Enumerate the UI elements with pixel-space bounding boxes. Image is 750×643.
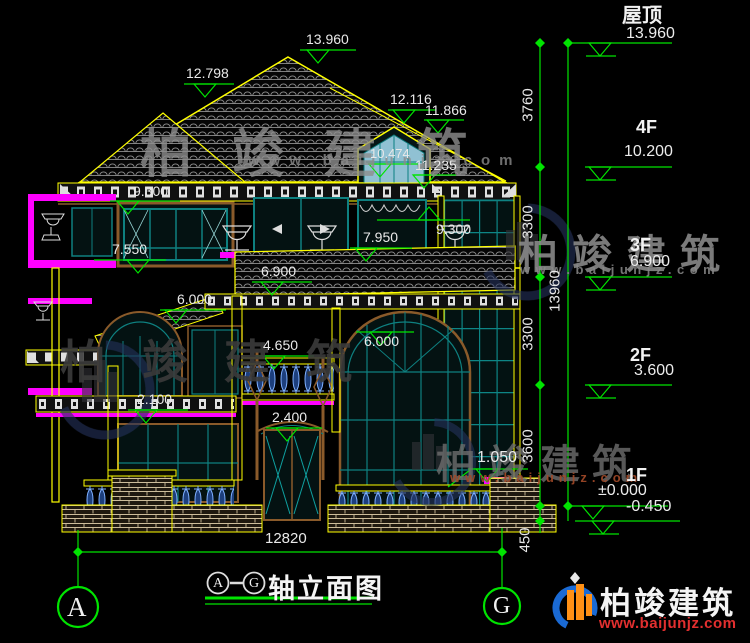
level-roof-value: 13.960 (626, 26, 675, 42)
level-3f-label: 3F (630, 236, 651, 254)
level-4f-label: 4F (636, 118, 657, 136)
dim-door-head: 2.400 (272, 410, 307, 424)
level-basement-value: -0.450 (626, 499, 671, 515)
vdim-seg4: 3600 (520, 429, 537, 462)
dim-overall-width: 12820 (265, 531, 307, 546)
level-2f-value: 3.600 (634, 363, 674, 379)
vdim-seg1: 3760 (520, 88, 537, 121)
brand-logo-icon (550, 572, 600, 633)
level-3f-value: 6.900 (630, 254, 670, 270)
dim-canopy-eave: 6.900 (261, 264, 296, 278)
title-axis-from: A (213, 576, 223, 592)
drawing-title: 轴立面图 (268, 567, 384, 606)
entrance-door (256, 422, 328, 520)
level-1f-value: ±0.000 (598, 483, 647, 499)
dim-porch-band: 2.100 (137, 392, 172, 406)
dim-sill-right: 1.050 (477, 450, 517, 466)
vdim-seg5: 450 (517, 527, 534, 552)
dim-eave-left: 9.300 (133, 184, 168, 198)
dim-dormer-eave: 11.235 (415, 158, 457, 172)
axis-bubble-right: G (493, 593, 510, 620)
dim-parapet-left: 7.550 (112, 242, 147, 256)
vdim-seg3: 3300 (520, 317, 537, 350)
dim-left-ridge: 12.798 (186, 66, 229, 80)
vdim-overall: 13960 (547, 270, 564, 312)
dim-parapet-center: 7.950 (363, 230, 398, 244)
elevation-drawing (0, 0, 750, 643)
axis-bubble-left: A (67, 592, 87, 623)
level-roof-label: 屋顶 (622, 6, 662, 26)
cad-elevation-screenshot: 柏竣建筑 www.baijunjz.com 柏竣建筑 www.baijunjz.… (0, 0, 750, 643)
dim-eave-right: 9.300 (436, 222, 471, 236)
logo-site-text: www.baijunjz.com (599, 615, 736, 632)
dim-right-roof-edge: 11.866 (425, 103, 467, 117)
level-4f-value: 10.200 (624, 144, 673, 160)
dim-dormer-window: 10.474 (370, 147, 410, 160)
dim-main-ridge: 13.960 (306, 32, 349, 46)
dim-arch-window-top: 6.000 (364, 334, 399, 348)
title-axis-to: G (249, 576, 259, 592)
dim-canopy-left-eave: 6.000 (177, 292, 212, 306)
left-bay-upper (28, 194, 116, 268)
dim-balcony-rail: 4.650 (263, 338, 298, 352)
vdim-seg2: 3300 (520, 205, 537, 238)
